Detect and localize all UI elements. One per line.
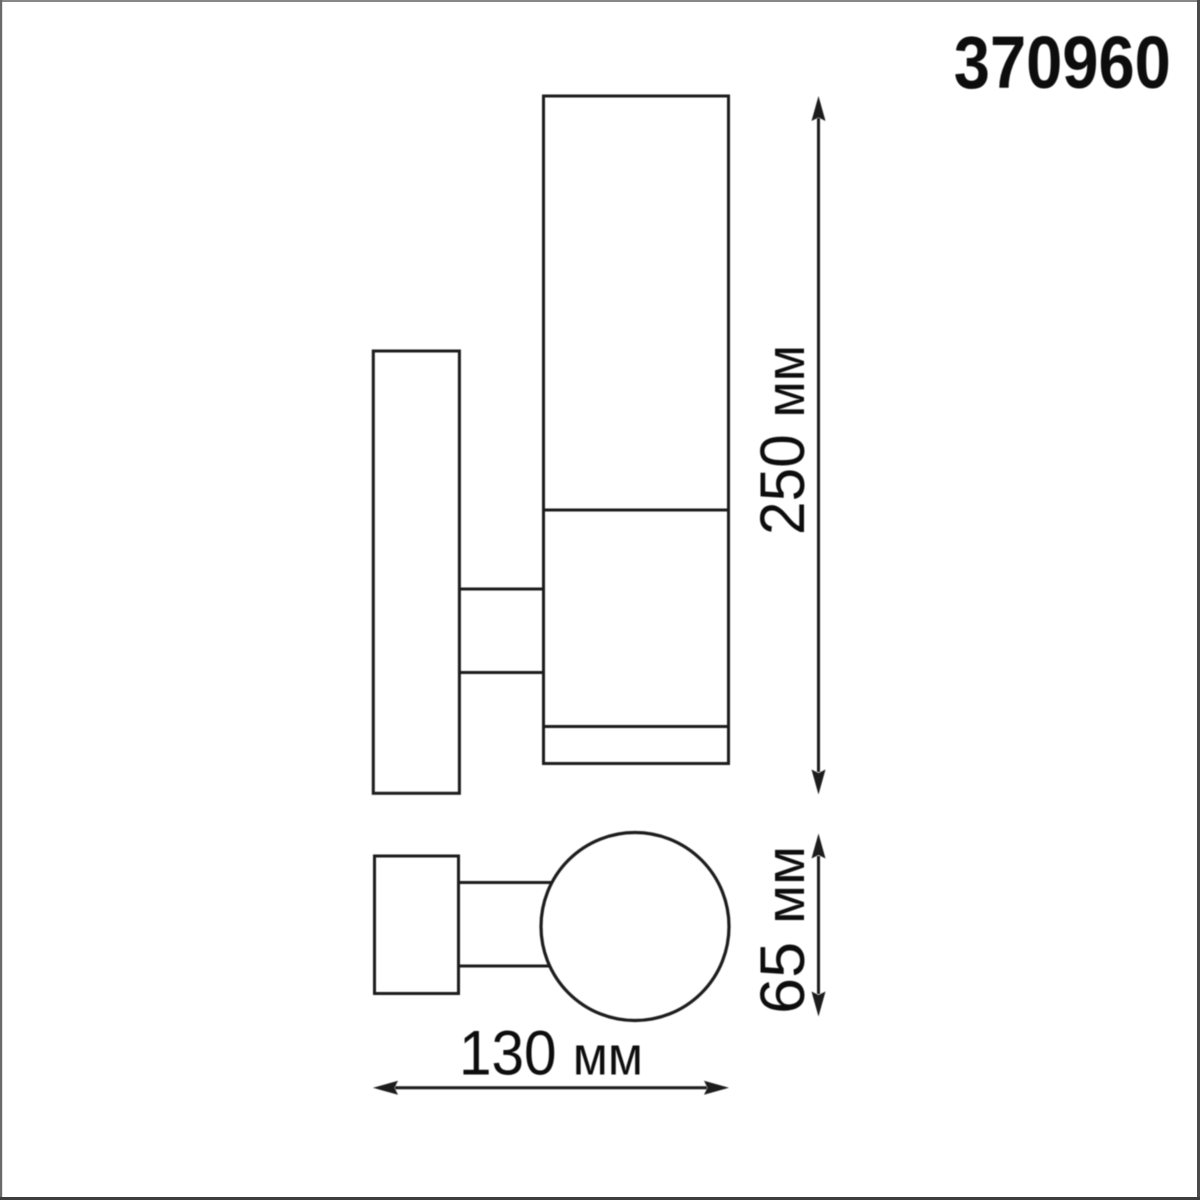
svg-text:370960: 370960 xyxy=(954,21,1171,104)
svg-text:130 мм: 130 мм xyxy=(459,1019,643,1089)
svg-text:250 мм: 250 мм xyxy=(748,345,818,535)
svg-text:65 мм: 65 мм xyxy=(748,846,818,1014)
